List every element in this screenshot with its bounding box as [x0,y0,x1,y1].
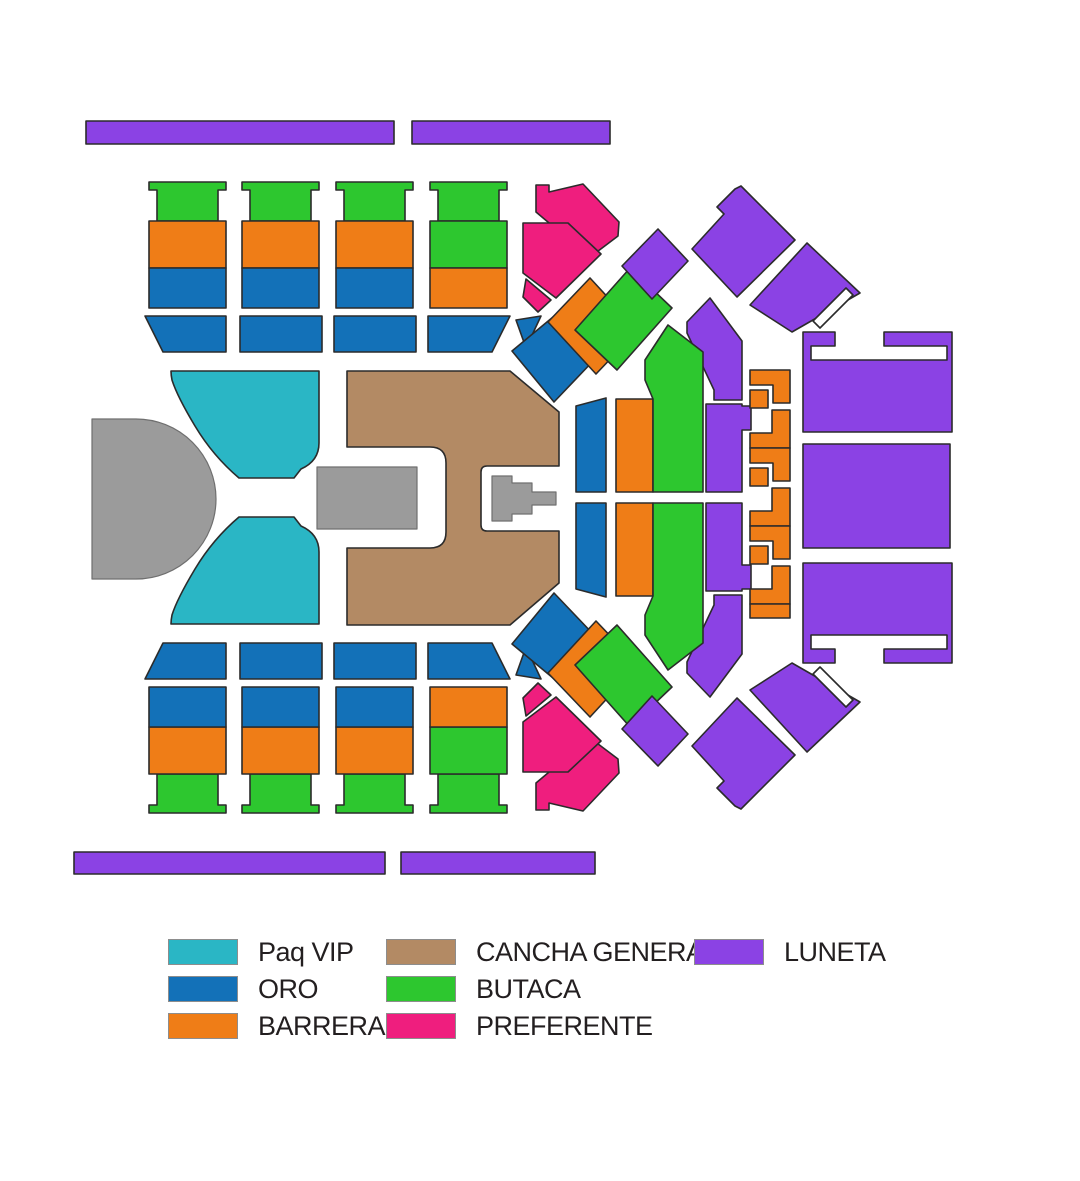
section-butaca-tab-3[interactable] [336,182,413,221]
section-luneta-right-middle-block[interactable] [803,444,950,548]
section-barrera-1[interactable] [149,221,226,268]
section-oro-1[interactable] [149,268,226,308]
legend-swatch-barrera [168,1013,238,1039]
legend-label-paq-vip: Paq VIP [258,939,354,965]
legend-swatch-preferente [386,1013,456,1039]
section-oro-3[interactable] [336,268,413,308]
section-butaca-tab-4[interactable] [430,182,507,221]
section-luneta-top-bar-2[interactable] [412,121,610,144]
section-barrera-box-9[interactable] [750,566,790,604]
section-barrera-4[interactable] [430,268,507,308]
section-oro-thin-row-2[interactable] [240,316,322,352]
center-stage [317,467,417,529]
legend-item-luneta: LUNETA [694,939,886,965]
section-luneta-side-column[interactable] [706,404,751,492]
legend-label-barrera: BARRERA [258,1013,385,1039]
section-oro-thin-row-4[interactable] [428,316,510,352]
section-barrera-side-column[interactable] [616,399,653,492]
legend-swatch-oro [168,976,238,1002]
legend-swatch-butaca [386,976,456,1002]
legend-label-butaca: BUTACA [476,976,581,1002]
section-barrera-3[interactable] [336,221,413,268]
section-butaca-4[interactable] [430,221,507,268]
camera-riser [492,476,556,521]
legend-label-preferente: PREFERENTE [476,1013,653,1039]
legend-swatch-cancha-general [386,939,456,965]
legend-item-paq-vip: Paq VIP [168,939,385,965]
legend-item-oro: ORO [168,976,385,1002]
section-barrera-box-2[interactable] [750,390,768,408]
section-barrera-2[interactable] [242,221,319,268]
section-butaca-side-column[interactable] [645,325,703,492]
section-luneta-bottom-bar-2[interactable] [401,852,595,874]
legend: Paq VIP ORO BARRERA CANCHA GENERAL BUTAC… [0,939,1080,1059]
legend-item-preferente: PREFERENTE [386,1013,718,1039]
section-oro-side-column[interactable] [576,398,606,492]
legend-item-butaca: BUTACA [386,976,718,1002]
section-butaca-tab-2[interactable] [242,182,319,221]
legend-label-cancha-general: CANCHA GENERAL [476,939,718,965]
legend-label-oro: ORO [258,976,318,1002]
legend-swatch-paq-vip [168,939,238,965]
section-barrera-box-3[interactable] [750,410,790,448]
section-luneta-top-bar-1[interactable] [86,121,394,144]
section-barrera-box-5[interactable] [750,468,768,486]
section-barrera-box-6[interactable] [750,488,790,526]
section-oro-2[interactable] [242,268,319,308]
main-stage [92,419,216,579]
legend-item-barrera: BARRERA [168,1013,385,1039]
section-oro-thin-row-3[interactable] [334,316,416,352]
legend-column-1: Paq VIP ORO BARRERA [168,939,385,1039]
section-barrera-box-10[interactable] [750,604,790,618]
section-luneta-right-block[interactable] [803,332,952,432]
section-luneta-bottom-bar-1[interactable] [74,852,385,874]
legend-label-luneta: LUNETA [784,939,886,965]
section-oro-thin-row-1[interactable] [145,316,226,352]
section-butaca-tab-1[interactable] [149,182,226,221]
legend-swatch-luneta [694,939,764,965]
legend-column-2: CANCHA GENERAL BUTACA PREFERENTE [386,939,718,1039]
section-barrera-box-8[interactable] [750,546,768,564]
legend-column-3: LUNETA [694,939,886,965]
legend-item-cancha-general: CANCHA GENERAL [386,939,718,965]
